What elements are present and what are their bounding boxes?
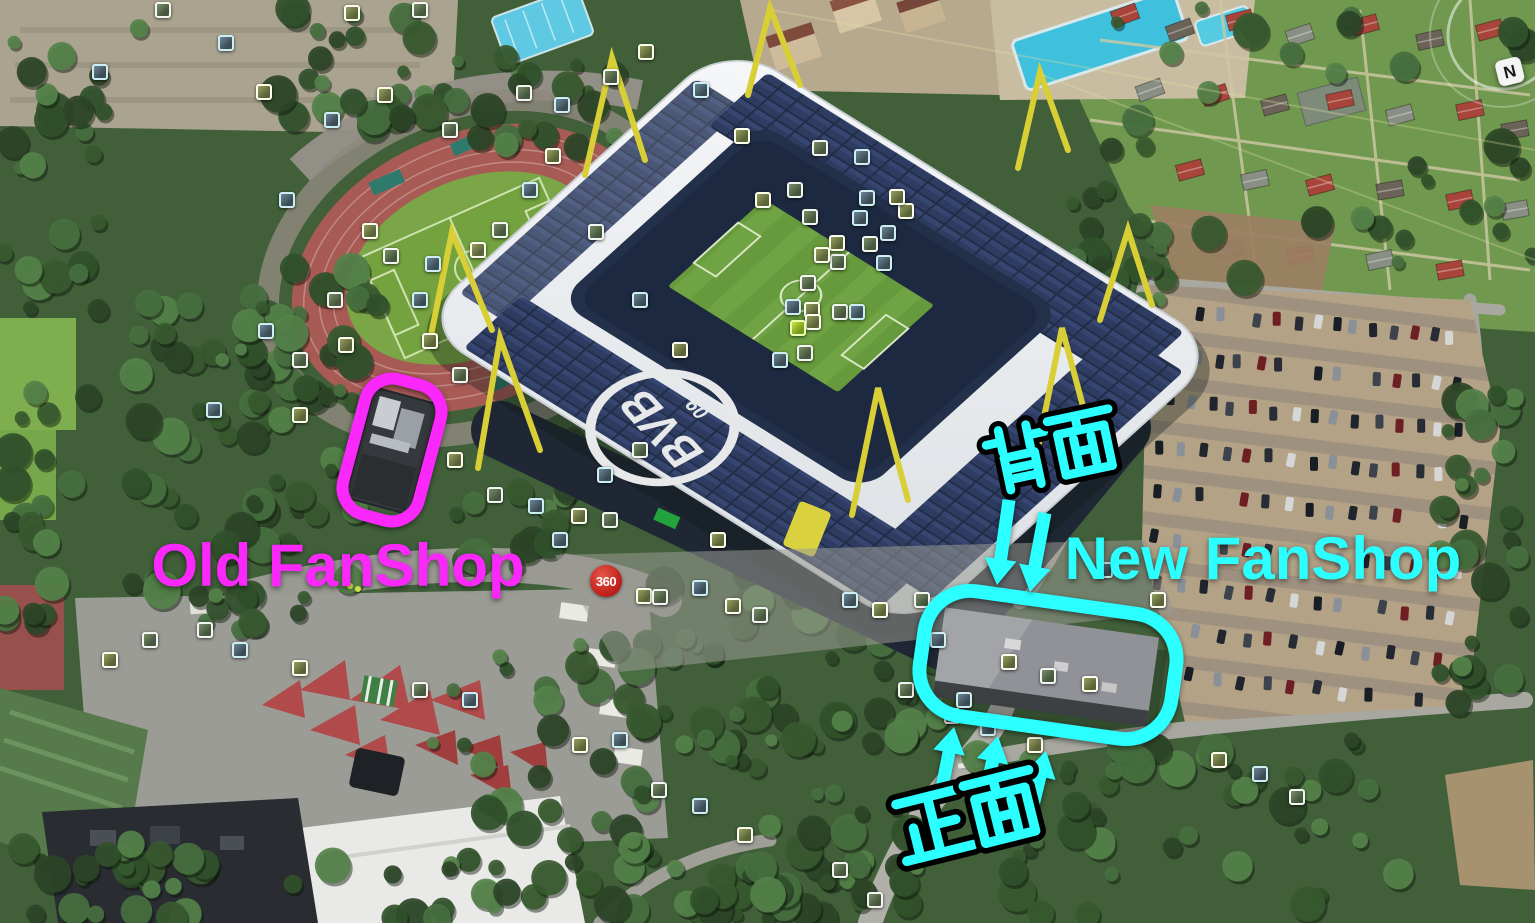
back-side-label xyxy=(984,407,1121,493)
arrow-down xyxy=(985,500,1017,585)
old-fanshop-label: Old FanShop xyxy=(151,532,524,599)
arrow-down xyxy=(1019,513,1050,592)
old-fanshop-outline xyxy=(336,372,448,527)
new-fanshop-label: New FanShop xyxy=(1065,525,1462,592)
compass[interactable]: N xyxy=(1430,0,1535,107)
aerial-view-signal-iduna-park: BVB 09 xyxy=(0,0,1535,923)
front-side-label xyxy=(893,770,1044,863)
annotation-overlay: Old FanShop New FanShop N xyxy=(0,0,1535,923)
new-fanshop-outline xyxy=(913,585,1182,745)
